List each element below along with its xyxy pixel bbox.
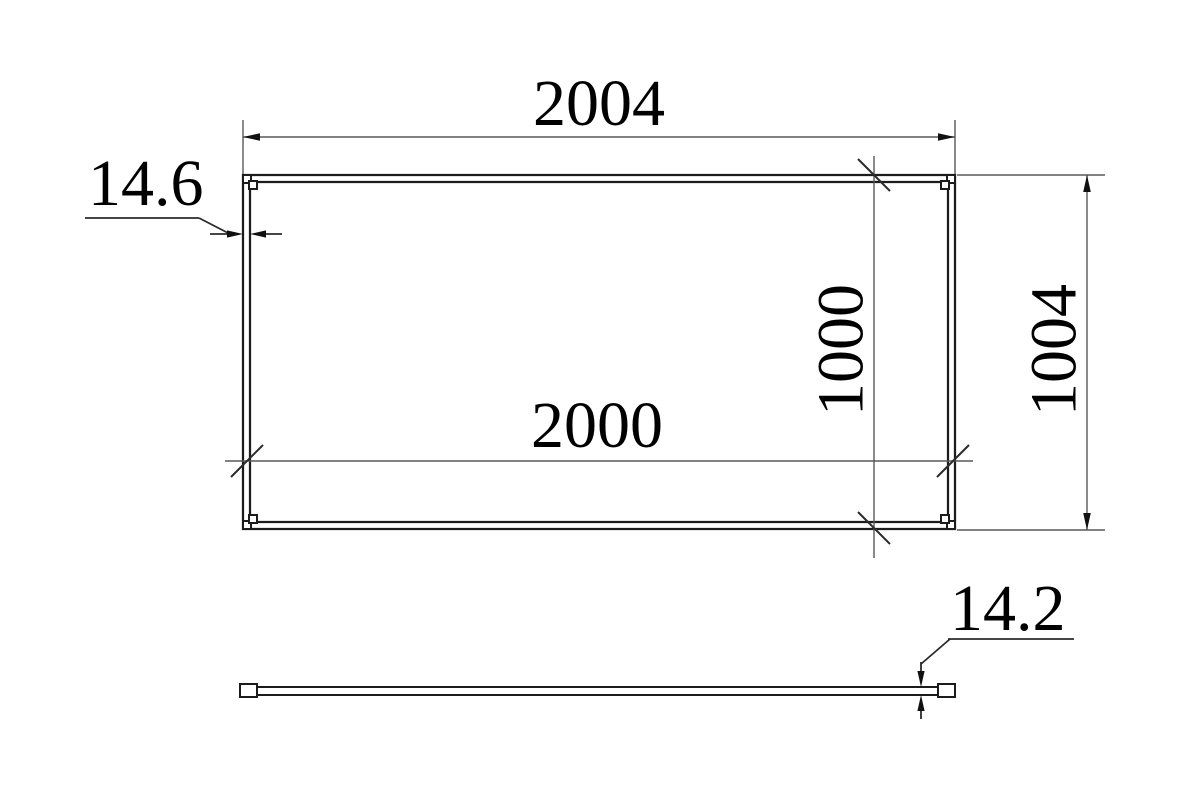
dim-inner-height-label: 1000 [809,282,875,419]
arrowhead-right [227,230,243,237]
arrowhead-right [938,133,955,141]
arrowhead-up [1083,175,1091,192]
leader-diagonal [199,218,230,234]
profile-strip [240,687,955,695]
side-view-linework [240,684,955,697]
arrowhead-down [1083,513,1091,530]
dim-inner-width-label: 2000 [529,393,665,459]
arrowhead-up [917,695,924,711]
dim-frame-thickness-label: 14.6 [88,151,204,217]
leader-diagonal [921,639,950,664]
profile-end-cap-left [240,684,257,697]
profile-end-cap-right [938,684,955,697]
dim-outer-width-label: 2004 [531,71,667,137]
technical-drawing: 2004 14.6 1000 1004 2000 14.2 [0,0,1200,800]
leader-profile-thickness [921,639,1074,719]
arrowhead-down [917,671,924,687]
dim-outer-height-label: 1004 [1022,282,1088,419]
arrowhead-left [243,133,260,141]
dim-profile-thickness-label: 14.2 [950,576,1066,642]
